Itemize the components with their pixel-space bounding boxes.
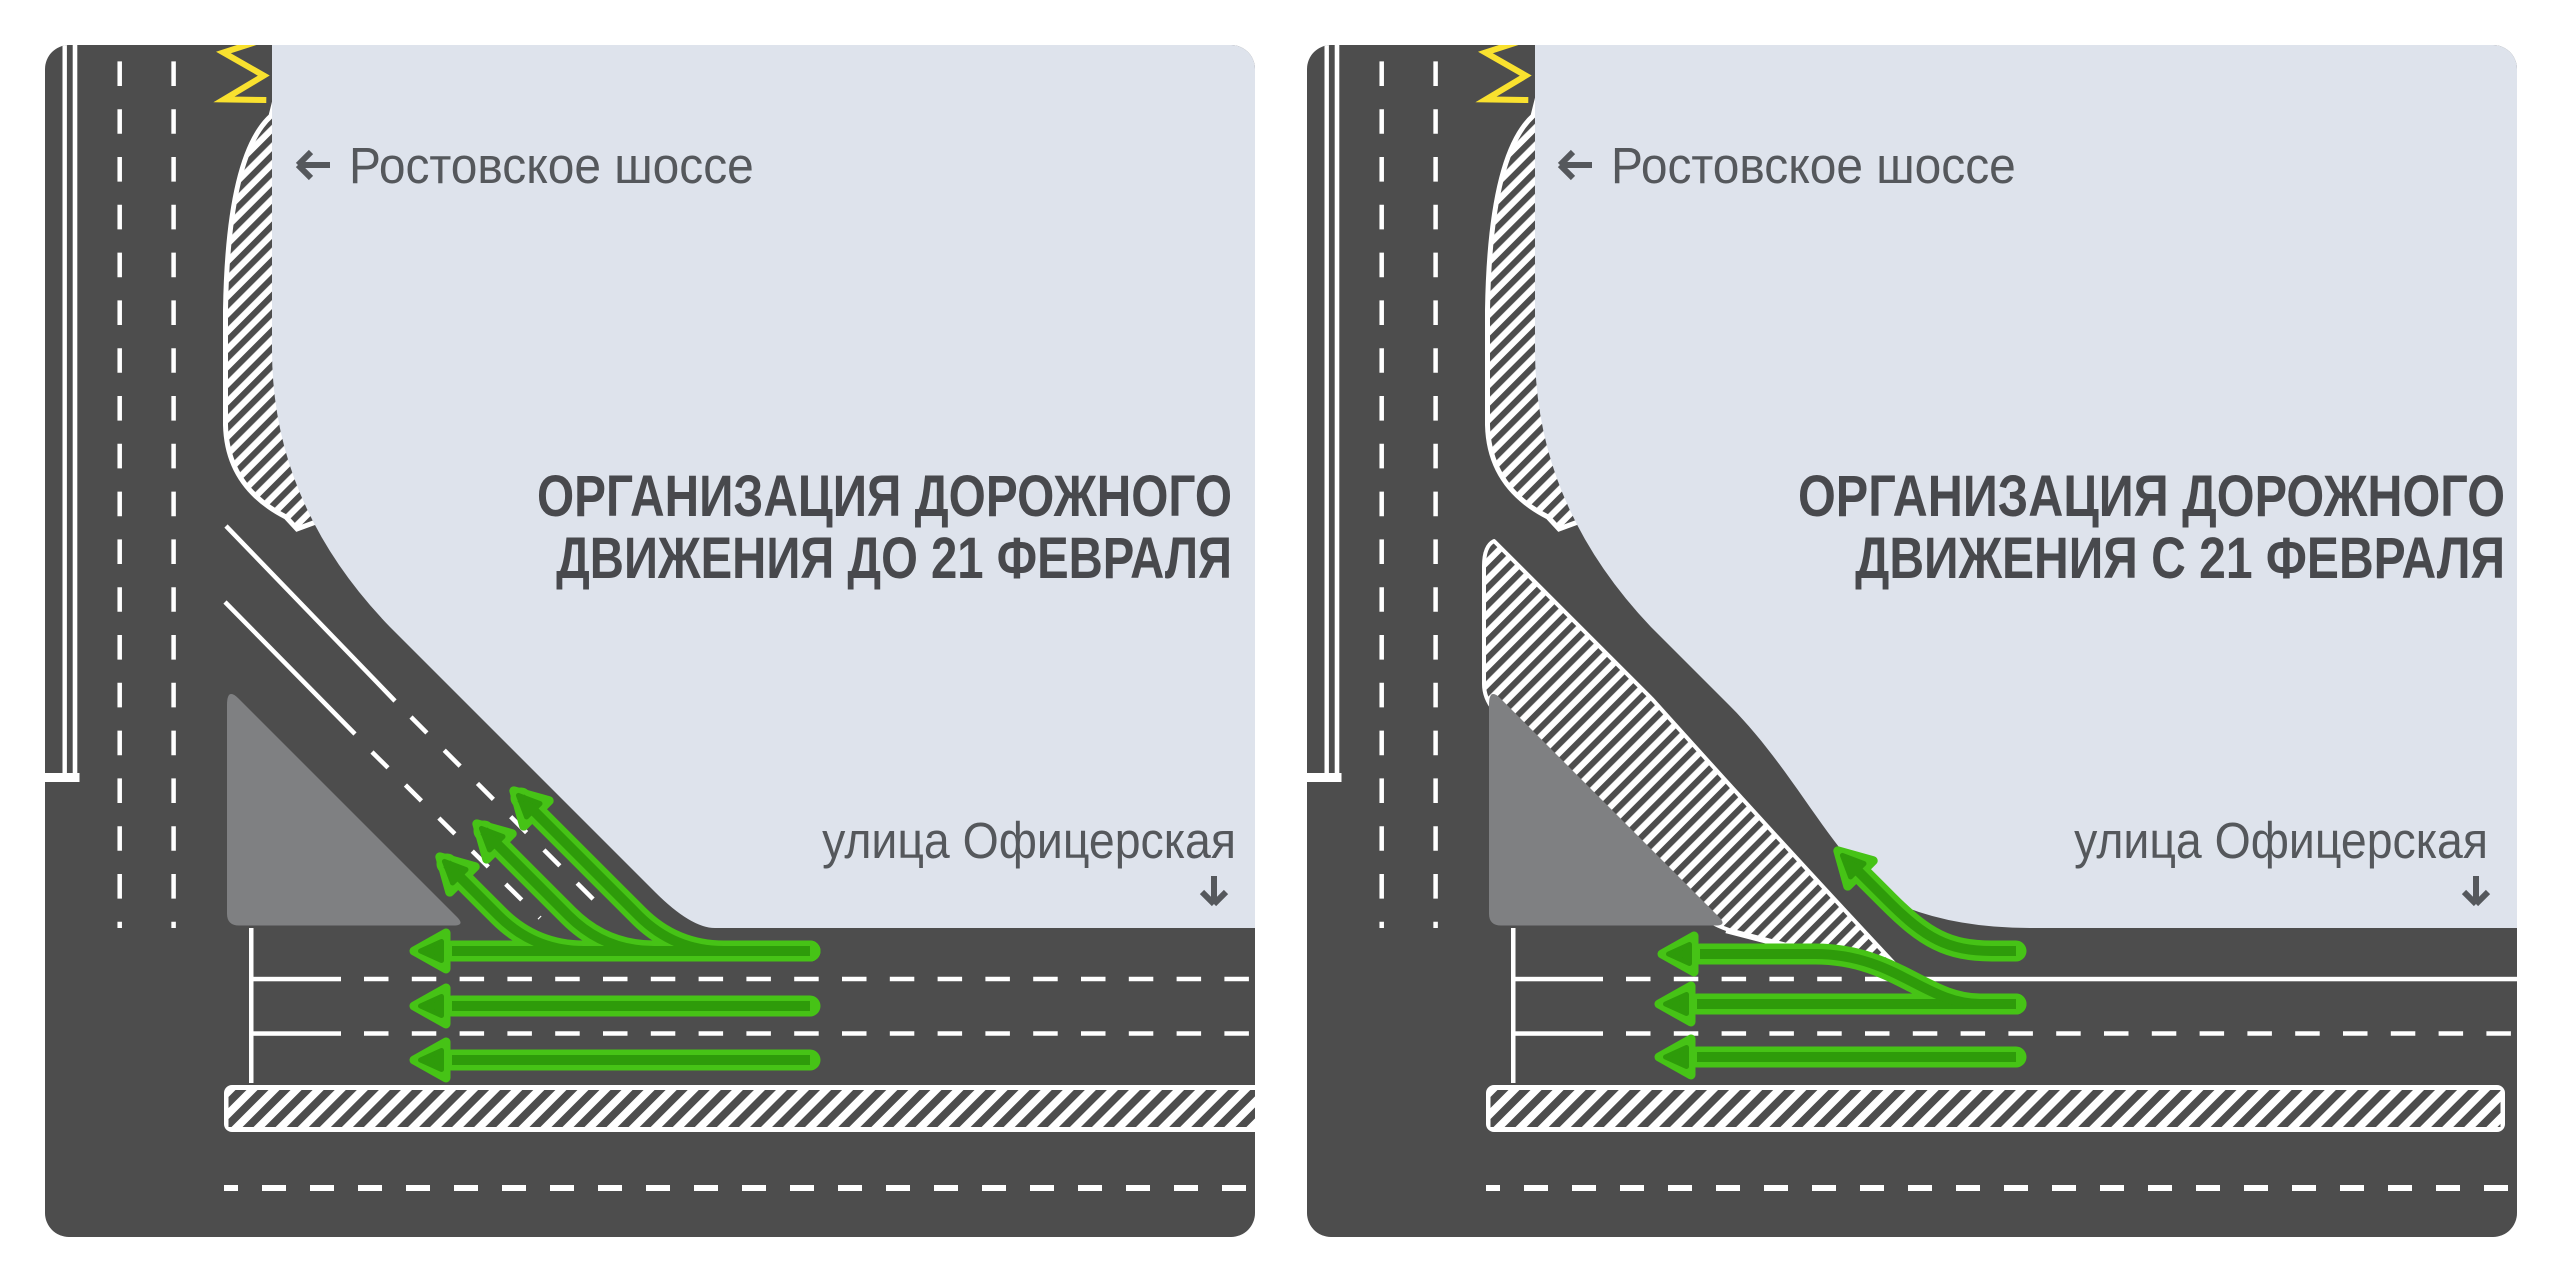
svg-text:ДВИЖЕНИЯ С 21 ФЕВРАЛЯ: ДВИЖЕНИЯ С 21 ФЕВРАЛЯ <box>1855 527 2505 591</box>
svg-text:ДВИЖЕНИЯ ДО 21 ФЕВРАЛЯ: ДВИЖЕНИЯ ДО 21 ФЕВРАЛЯ <box>556 526 1232 591</box>
svg-text:Ростовское шоссе: Ростовское шоссе <box>1611 138 2016 195</box>
svg-text:улица Офицерская: улица Офицерская <box>822 813 1236 869</box>
svg-text:улица Офицерская: улица Офицерская <box>2074 813 2488 869</box>
svg-text:Ростовское шоссе: Ростовское шоссе <box>349 138 754 195</box>
svg-text:ОРГАНИЗАЦИЯ ДОРОЖНОГО: ОРГАНИЗАЦИЯ ДОРОЖНОГО <box>1798 465 2505 529</box>
svg-text:ОРГАНИЗАЦИЯ ДОРОЖНОГО: ОРГАНИЗАЦИЯ ДОРОЖНОГО <box>537 465 1232 529</box>
